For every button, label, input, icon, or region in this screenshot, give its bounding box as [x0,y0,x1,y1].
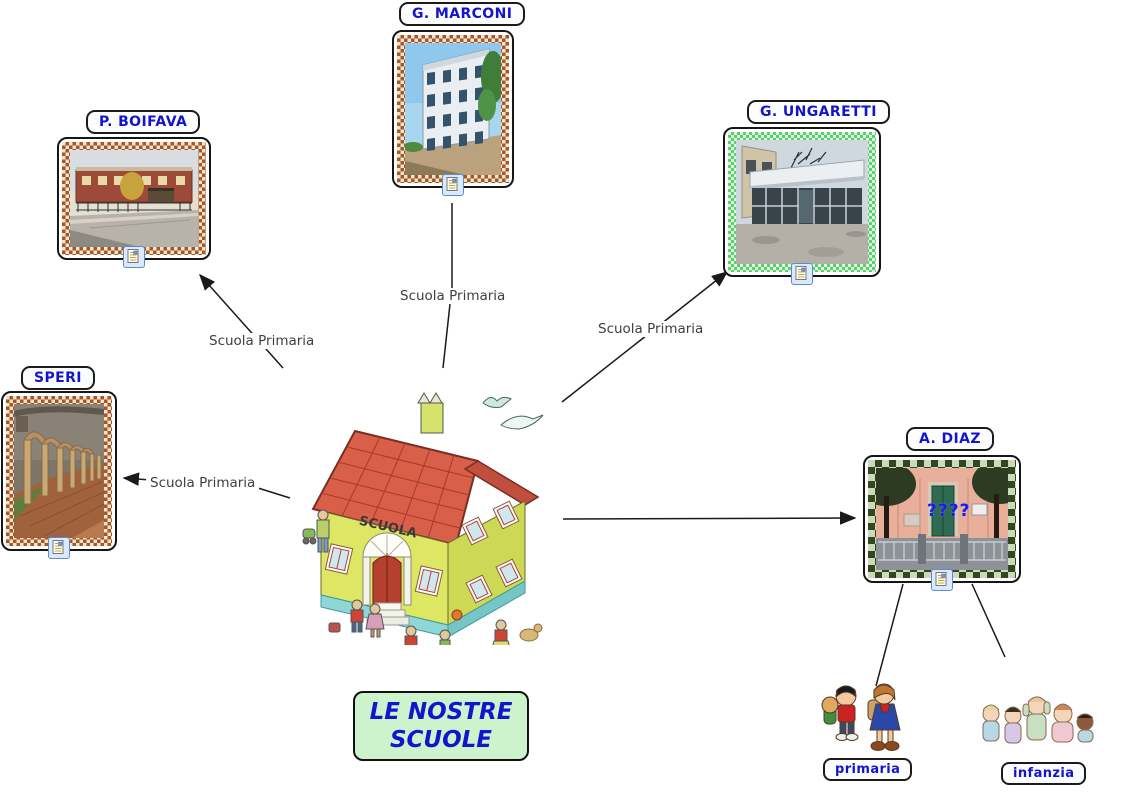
infanzia-clipart[interactable] [975,690,1095,752]
node-label-infanzia[interactable]: infanzia [1001,762,1086,785]
photo-node-diaz[interactable]: ???? [863,455,1021,583]
map-title[interactable]: LE NOSTRE SCUOLE [353,691,529,761]
link-line-ungaretti [562,272,727,402]
photo-node-boifava[interactable] [57,137,211,260]
marconi-school-photo [405,43,501,175]
link-label-boifava[interactable]: Scuola Primaria [205,333,318,349]
node-label-diaz[interactable]: A. DIAZ [906,427,994,451]
diaz-overlay-text: ???? [927,501,970,521]
resource-icon[interactable] [123,246,145,268]
primaria-clipart[interactable] [816,678,911,758]
ungaretti-photo-frame [728,132,876,272]
node-label-ungaretti[interactable]: G. UNGARETTI [747,100,890,124]
speri-photo-frame [6,396,112,546]
speri-cloister-photo [14,404,104,538]
link-line-diaz-infanzia [972,584,1005,657]
link-line-diaz-primaria [876,584,903,686]
map-title-line2: SCUOLE [355,726,527,754]
central-school-illustration[interactable]: SCUOLA [293,373,545,645]
link-line-boifava [200,275,283,368]
resource-icon[interactable] [442,174,464,196]
boifava-photo-frame [62,142,206,255]
node-label-marconi[interactable]: G. MARCONI [399,2,525,26]
photo-node-speri[interactable] [1,391,117,551]
resource-icon[interactable] [791,263,813,285]
photo-node-marconi[interactable] [392,30,514,188]
photo-node-ungaretti[interactable] [723,127,881,277]
link-label-ungaretti[interactable]: Scuola Primaria [594,321,707,337]
link-label-marconi[interactable]: Scuola Primaria [396,288,509,304]
boifava-school-photo [70,150,198,247]
concept-map-canvas: Scuola Primaria Scuola Primaria Scuola P… [0,0,1146,793]
marconi-photo-frame [397,35,509,183]
map-title-line1: LE NOSTRE [355,698,527,726]
node-label-boifava[interactable]: P. BOIFAVA [86,110,200,134]
node-label-primaria[interactable]: primaria [823,758,912,781]
link-line-diaz [563,518,855,519]
link-line-marconi [443,203,452,368]
node-label-speri[interactable]: SPERI [21,366,95,390]
ungaretti-school-photo [736,140,868,264]
resource-icon[interactable] [931,569,953,591]
link-label-speri[interactable]: Scuola Primaria [146,475,259,491]
resource-icon[interactable] [48,537,70,559]
